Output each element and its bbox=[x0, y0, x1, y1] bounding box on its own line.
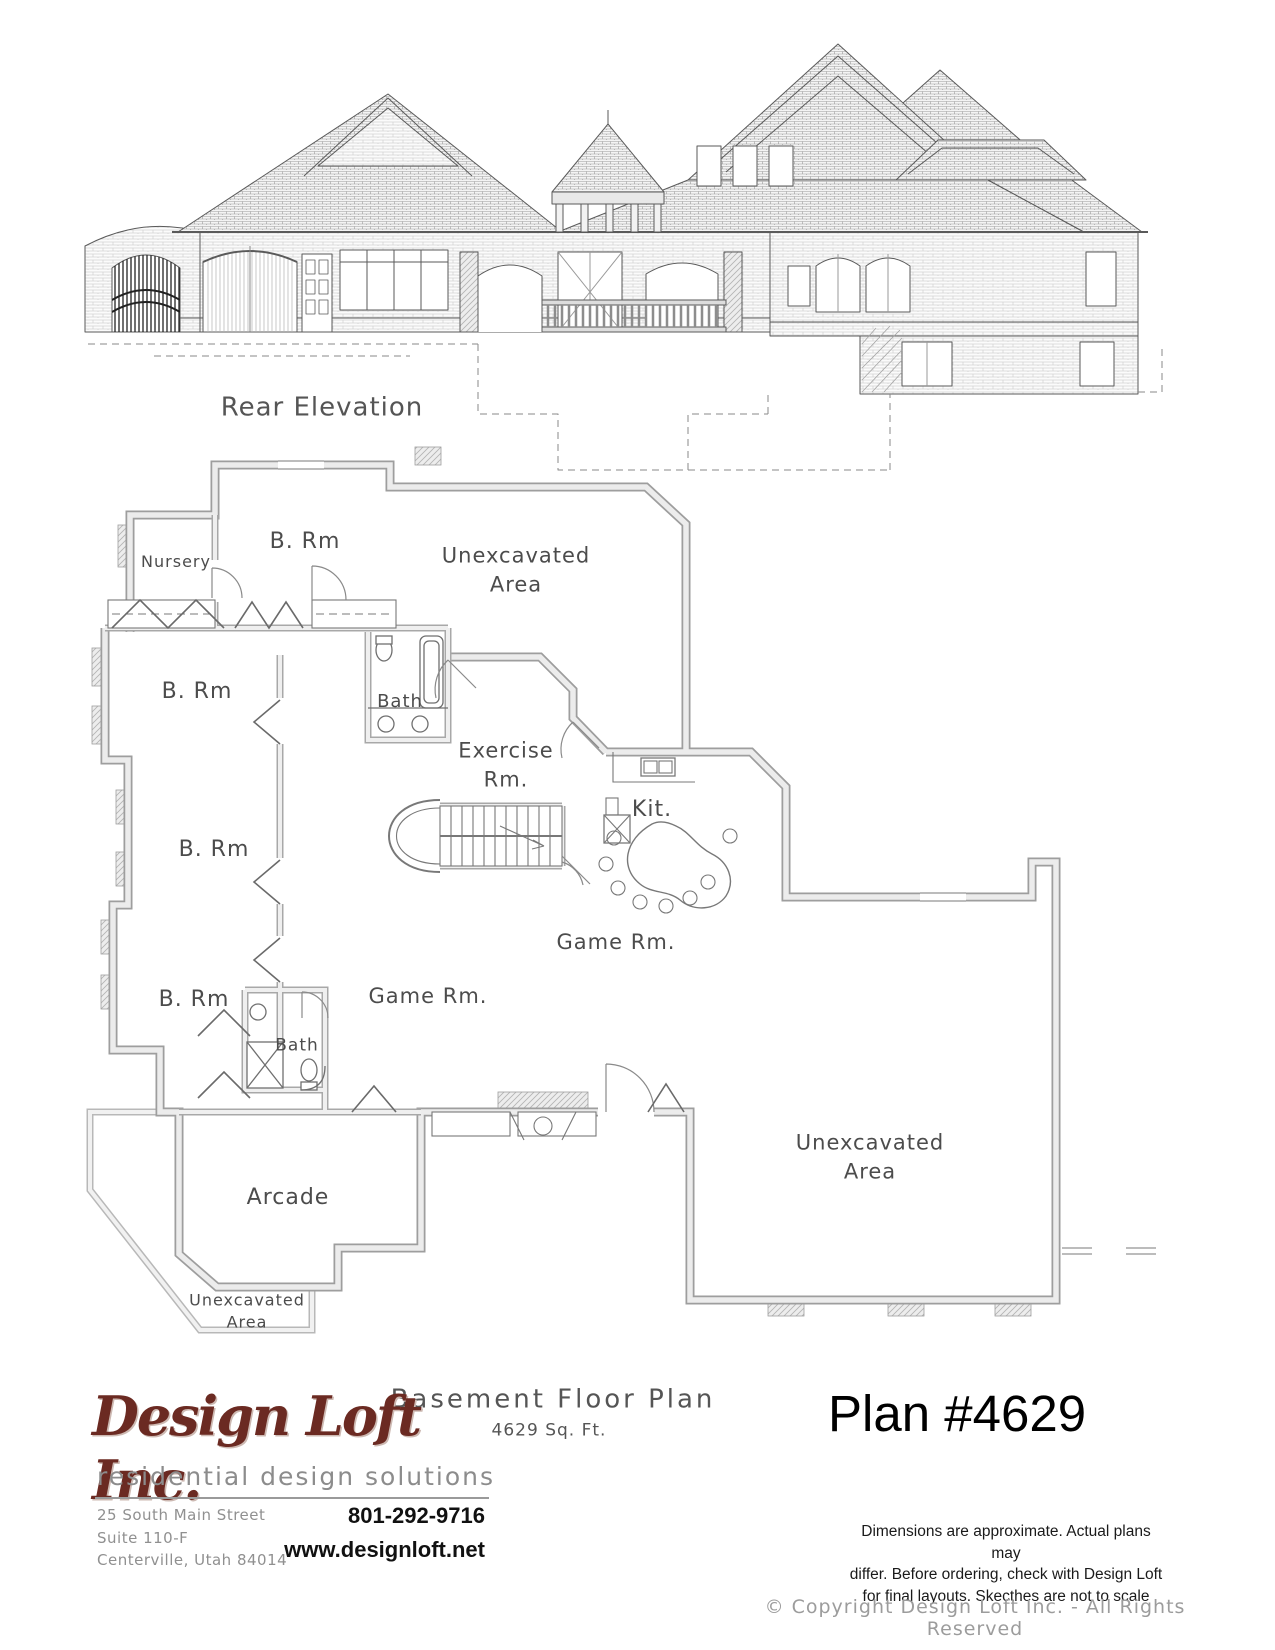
room-label-line: Rm. bbox=[458, 766, 553, 795]
room-label-bath-lower: Bath bbox=[275, 1035, 319, 1058]
disclaimer-text: Dimensions are approximate. Actual plans… bbox=[845, 1521, 1167, 1608]
room-label-kitchen: Kit. bbox=[632, 795, 672, 825]
room-label-unexcavated-top: Unexcavated Area bbox=[442, 542, 590, 601]
room-label-line: Unexcavated bbox=[796, 1129, 944, 1158]
room-label-line: Exercise bbox=[458, 737, 553, 766]
plan-sheet: Rear Elevation Nursery B. Rm Unexcavated… bbox=[0, 0, 1275, 1650]
address-block: 25 South Main Street Suite 110-F Centerv… bbox=[97, 1504, 287, 1572]
rear-elevation-title: Rear Elevation bbox=[221, 390, 424, 425]
room-label-bedroom-bottom: B. Rm bbox=[159, 985, 230, 1015]
logo-tagline: residential design solutions bbox=[97, 1462, 497, 1491]
room-label-nursery: Nursery bbox=[141, 551, 211, 573]
room-label-bath-upper: Bath bbox=[377, 690, 423, 714]
disclaimer-line-1: Dimensions are approximate. Actual plans… bbox=[845, 1521, 1167, 1564]
address-line-3: Centerville, Utah 84014 bbox=[97, 1549, 287, 1572]
room-label-game-room-west: Game Rm. bbox=[369, 982, 488, 1010]
room-label-unexcavated-southwest: Unexcavated Area bbox=[189, 1290, 305, 1335]
copyright-notice: © Copyright Design Loft Inc. - All Right… bbox=[745, 1596, 1205, 1640]
design-loft-logo: Design Loft Inc. bbox=[92, 1384, 492, 1512]
disclaimer-line-2: differ. Before ordering, check with Desi… bbox=[845, 1564, 1167, 1586]
room-label-unexcavated-east: Unexcavated Area bbox=[796, 1129, 944, 1188]
room-label-line: Area bbox=[189, 1312, 305, 1334]
website-url: www.designloft.net bbox=[260, 1537, 485, 1563]
room-label-line: Area bbox=[442, 571, 590, 600]
room-label-arcade: Arcade bbox=[247, 1183, 330, 1213]
room-label-line: Unexcavated bbox=[189, 1290, 305, 1312]
plan-number: Plan #4629 bbox=[828, 1384, 1148, 1443]
room-label-bedroom-lower: B. Rm bbox=[179, 835, 250, 865]
room-label-exercise: Exercise Rm. bbox=[458, 737, 553, 796]
room-label-line: Unexcavated bbox=[442, 542, 590, 571]
address-line-2: Suite 110-F bbox=[97, 1527, 287, 1550]
room-label-bedroom-mid: B. Rm bbox=[162, 677, 233, 707]
phone-number: 801-292-9716 bbox=[300, 1503, 485, 1529]
room-label-line: Area bbox=[796, 1158, 944, 1187]
room-label-bedroom-top: B. Rm bbox=[270, 527, 341, 557]
address-line-1: 25 South Main Street bbox=[97, 1504, 287, 1527]
room-label-game-room-main: Game Rm. bbox=[557, 928, 676, 956]
footer-divider bbox=[95, 1497, 489, 1499]
floor-plan-area: 4629 Sq. Ft. bbox=[492, 1420, 607, 1443]
